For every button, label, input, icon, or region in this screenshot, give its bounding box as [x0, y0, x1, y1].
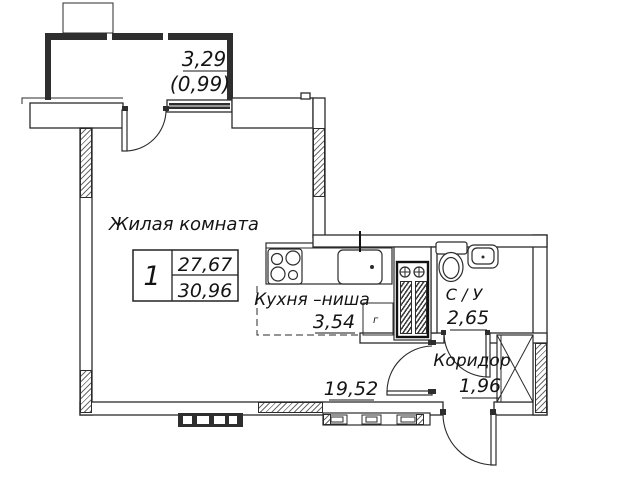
bathroom-area-label: 2,65 — [447, 307, 489, 329]
kitchen-area-label: 3,54 — [313, 311, 355, 333]
entrance-door-leaf — [491, 414, 496, 465]
wall-hatch-right-upper — [313, 128, 325, 197]
living-room-label: Жилая комната — [108, 214, 259, 235]
balcony-door-arc — [125, 110, 166, 151]
living-room-area-label: 19,52 — [324, 378, 378, 400]
window-end-hatch-left — [323, 414, 331, 425]
kitchen-label: Кухня –ниша — [254, 290, 370, 310]
rooms-count: 1 — [143, 261, 160, 292]
upper-balcony-box — [63, 3, 113, 33]
door-arc — [387, 346, 432, 392]
area-table: 1 27,67 30,96 — [133, 250, 238, 302]
floor-plan-drawing: г — [0, 0, 640, 488]
stove-icon — [268, 249, 302, 284]
window-end-hatch-right — [416, 414, 424, 425]
door-leaf — [387, 391, 432, 395]
wall-hatch-bottom — [258, 402, 323, 413]
entrance-door-arc — [443, 414, 494, 465]
toilet-icon — [436, 242, 467, 282]
corridor-label: Коридор — [433, 351, 510, 371]
bathroom-label: С / У — [446, 285, 484, 304]
facade-window-left-icon — [178, 413, 243, 427]
balcony-door — [122, 106, 169, 151]
gas-meter-symbol: г — [373, 315, 379, 326]
corridor-area-label: 1,96 — [459, 375, 501, 397]
balcony-door-leaf — [122, 110, 127, 151]
balcony-area-coef-label: (0,99) — [170, 72, 230, 96]
floor-plan: г — [0, 0, 640, 488]
living-to-corridor-door — [387, 340, 436, 395]
total-area-value: 30,96 — [178, 280, 232, 302]
balcony-area-label: 3,29 — [182, 47, 227, 71]
facade-window-right-icon — [323, 413, 430, 425]
wall-hatch-left-upper — [80, 128, 92, 198]
wall-hatch-right-lower — [535, 343, 547, 413]
washbasin-icon — [468, 245, 498, 268]
shaft-duct-right — [415, 281, 427, 334]
wall-hatch-left-lower — [80, 370, 92, 413]
entrance-door — [440, 409, 496, 465]
shaft-duct-left — [400, 281, 412, 334]
living-area-value: 27,67 — [178, 254, 232, 276]
